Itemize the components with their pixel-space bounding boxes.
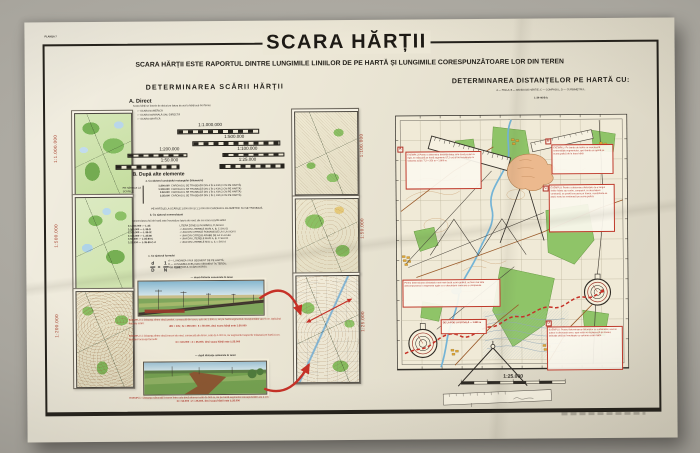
table-row: 1:25.000CAROIAJUL SE TRASEAZĂ DIN 1 ÎN 1… — [144, 193, 288, 197]
bar-label-200k: 1:200.000 — [139, 146, 199, 151]
map-sample-200k-art — [75, 291, 134, 388]
red-arrows-overlay — [255, 262, 376, 403]
sub-a-title: a. Cu ajutorul caroiajului rectangular (… — [146, 178, 286, 182]
sheet-code: L-34-46-B-b — [455, 96, 627, 101]
map-sample-1m — [71, 110, 134, 196]
section-a-intro: Scara hărții se înscrie de obicei pe lat… — [133, 104, 283, 108]
sub-b-title: b. Cu ajutorul nomenclaturii — [150, 213, 280, 217]
arrow-photo1-to-map — [259, 290, 300, 314]
poster: PLANȘA 7 SCARA HĂRȚII SCARA HĂRȚII ESTE … — [24, 17, 677, 442]
map-sample-100k — [291, 108, 360, 197]
scale-label-200k: 1:200.000 — [54, 291, 60, 361]
bullet-graphic: — SCARA GRAFICĂ — [137, 117, 247, 121]
row-scale: 1:25.000 — [144, 194, 170, 197]
example-box-curbimeter-text: EXEMPLU: Pentru determinarea distanțelor… — [549, 328, 620, 338]
scale-label-1m: 1:1.000.000 — [53, 114, 59, 184]
bar-label-1m: 1:1.000.000 — [170, 122, 250, 128]
terrain-photo-road — [143, 361, 267, 396]
map-sample-500k-art — [75, 197, 134, 290]
marker-a: A — [397, 147, 403, 153]
grid-table: 1:200.000CAROIAJUL SE TRASEAZĂ DIN 4 ÎN … — [144, 183, 288, 197]
graphic-scale-bar — [461, 379, 565, 384]
railway-photo-art — [138, 281, 263, 316]
paper-band-bottom — [443, 390, 551, 406]
nomen-left: 1:25.000 — L-35-80-C-d — [128, 241, 178, 245]
scale-bar-25k — [219, 164, 284, 169]
distance-label-box: DE LA POD LA ȘCOALĂ — 1.850 m — [441, 319, 487, 335]
map-sample-100k-art — [294, 111, 359, 196]
sub-c-title: c. Cu ajutorul formulei — [148, 254, 268, 258]
nomen-row: 1:25.000 — L-35-80-C-d+ UNA DIN LITERELE… — [128, 240, 290, 245]
road-photo-art — [144, 362, 266, 395]
measured-segment-line — [307, 299, 352, 322]
nomen-desc: + UNA DIN LITERELE MICI a, b, c SAU d — [180, 240, 291, 244]
row-text: CAROIAJUL SE TRASEAZĂ DIN 1 ÎN 1 KM (4 C… — [171, 193, 288, 197]
example-box-ruler: EXEMPLU: Pentru a determina distanța din… — [405, 151, 482, 190]
map-sample-200k — [72, 288, 135, 389]
formula-D: D — [151, 268, 154, 273]
example-box-ruler-text: EXEMPLU: Pentru a determina distanța din… — [408, 153, 479, 163]
formula-N: N — [164, 268, 167, 273]
fraction-dD: dD — [150, 262, 155, 273]
bar-label-100k: 1:100.000 — [217, 145, 277, 150]
section-b-title: B. După alte elemente — [133, 171, 185, 177]
bracket-label-wrap: PE HĂRȚILE LA SCĂRILE: — [123, 187, 142, 200]
bar-label-25k: 1:25.000 — [217, 157, 277, 162]
bar-label-500k: 1:500.000 — [194, 134, 274, 140]
map-scale-text: 1:25.000 — [503, 374, 523, 380]
formula-d: d — [151, 262, 154, 267]
formula-1: 1 — [164, 261, 167, 266]
nomenclature-table: 1:1.000.000 — L-35LITERA ZONEI ȘI NUMĂRU… — [128, 223, 290, 244]
map-sample-1m-art — [74, 113, 133, 195]
bar-label-50k: 1:50.000 — [139, 157, 199, 162]
bracket-label: PE HĂRȚILE LA SCĂRILE: — [123, 187, 142, 194]
plate-label-wrap: PLANȘA 7 — [44, 35, 84, 42]
note-box-decomposition: Pentru determinarea distanțelor mai mari… — [402, 279, 501, 308]
scale-label-500k: 1:500.000 — [53, 201, 59, 271]
example-box-band: EXEMPLU: Pe banda de hârtie se marchează… — [551, 144, 614, 175]
scale-bar-50k — [115, 164, 179, 169]
terrain-photo-railway — [137, 280, 264, 317]
plate-label: PLANȘA 7 — [44, 35, 84, 39]
fraction-1N: 1N — [163, 261, 168, 272]
large-map: 1:25.000 A B C D EXEMPLU: Pentru a deter… — [395, 114, 629, 408]
photo-backdrop: PLANȘA 7 SCARA HĂRȚII SCARA HĂRȚII ESTE … — [0, 0, 700, 453]
page-title: SCARA HĂRȚII — [262, 30, 430, 54]
example-box-curbimeter: EXEMPLU: Pentru determinarea distanțelor… — [547, 326, 624, 371]
example-box-compass: EXEMPLU: Pentru a determina distanțele d… — [549, 184, 616, 233]
photo-scale-bar — [145, 309, 185, 313]
sub-b-note: Nomenclatura foii de hartă este înscrisă… — [132, 218, 288, 222]
note-box-decomposition-text: Pentru determinarea distanțelor mai mari… — [405, 281, 497, 288]
example-box-compass-text: EXEMPLU: Pentru a determina distanțele d… — [551, 186, 612, 198]
sheet-code-wrap: L-34-46-B-b — [455, 96, 627, 104]
example-box-band-text: EXEMPLU: Pe banda de hârtie se marchează… — [554, 146, 611, 155]
right-legend: A — RIGLA; B — BANDA DE HÂRTIE; C — COMP… — [433, 88, 649, 93]
arrow-photo2-to-map — [264, 364, 309, 391]
publisher-smudge — [561, 412, 645, 416]
grid-note: PE HĂRȚILE LA SCĂRILE 1:500.000 ȘI 1:1.0… — [126, 206, 288, 211]
formula-equals: = — [158, 264, 161, 269]
distance-label-text: DE LA POD LA ȘCOALĂ — 1.850 m — [443, 321, 484, 324]
